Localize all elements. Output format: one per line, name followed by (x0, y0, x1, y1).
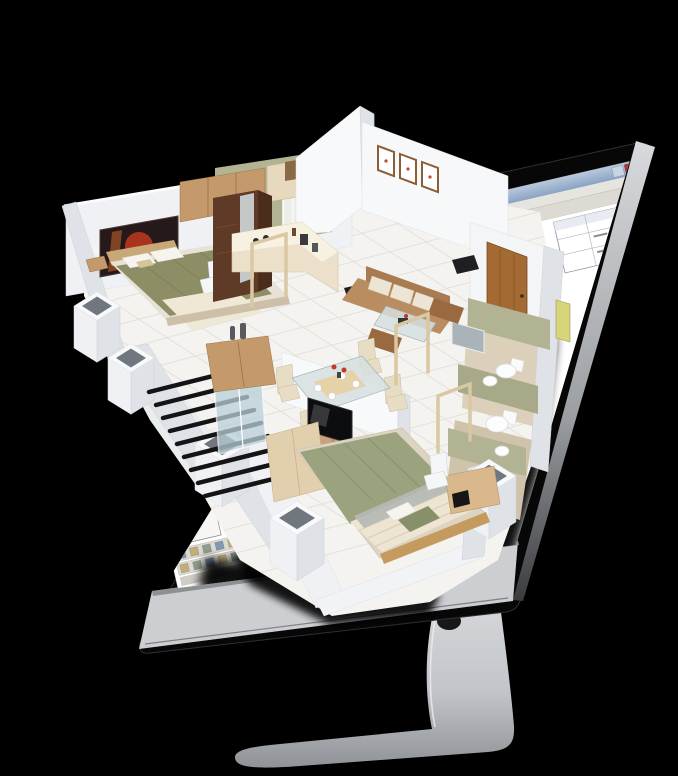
plate (329, 393, 336, 400)
vase (240, 323, 246, 339)
door-knob (520, 294, 524, 298)
red-flowers (342, 368, 347, 373)
table-lamp (461, 243, 469, 253)
table-lamp (93, 246, 100, 254)
appliance (312, 243, 318, 252)
hero-render: x (0, 0, 678, 776)
vase (230, 326, 235, 340)
column (108, 344, 154, 415)
washbasin (483, 376, 497, 386)
washbasin (495, 446, 509, 456)
red-flowers (332, 365, 337, 370)
plate (315, 385, 322, 392)
decor (404, 314, 408, 318)
scene-root: x (0, 0, 678, 776)
coffee-maker (300, 234, 308, 245)
bottle (292, 228, 296, 236)
column (270, 501, 324, 581)
column (74, 292, 120, 363)
vase (337, 372, 341, 378)
app-minimize-button (612, 165, 625, 177)
plate (353, 381, 360, 388)
shower-panel (556, 300, 570, 342)
